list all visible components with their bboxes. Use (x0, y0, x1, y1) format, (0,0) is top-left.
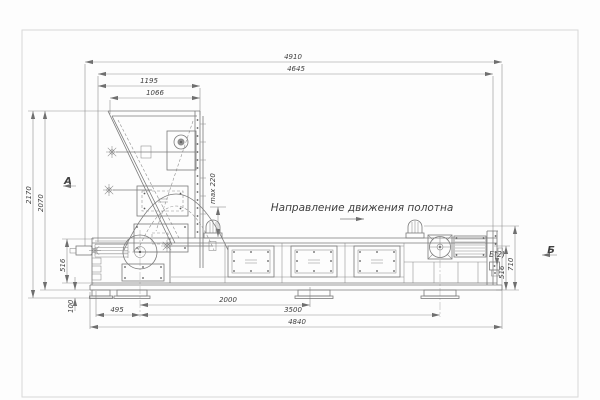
belt-direction: Направление движения полотна (271, 202, 454, 219)
dim-2000: 2000 (219, 296, 237, 304)
drive-unit (404, 231, 503, 285)
direction-label: Направление движения полотна (271, 202, 454, 214)
technical-drawing: 4910 4645 1195 1066 2170 2070 516 100 20… (0, 0, 600, 400)
view-a-label: А (63, 176, 72, 187)
dim-495: 495 (110, 306, 124, 314)
max-gap-label: max 220 (209, 173, 217, 204)
dim-4840: 4840 (288, 318, 306, 326)
dimension-lines (33, 62, 515, 327)
dim-3500: 3500 (284, 306, 302, 314)
drawing-sheet: 4910 4645 1195 1066 2170 2070 516 100 20… (0, 0, 600, 400)
handwheel-icon (89, 146, 173, 257)
access-panels (228, 246, 400, 277)
support-feet (90, 290, 460, 299)
dim-2170: 2170 (25, 186, 33, 204)
conveyor-body (70, 220, 502, 290)
dim-516-left: 516 (59, 258, 67, 272)
dim-710: 710 (507, 257, 515, 271)
dim-1195: 1195 (140, 77, 158, 85)
extension-lines (28, 64, 519, 329)
dim-100: 100 (67, 299, 75, 313)
dim-2070: 2070 (37, 194, 45, 212)
bearing-stand (204, 220, 424, 238)
dim-4645: 4645 (287, 65, 305, 73)
dim-4910: 4910 (284, 53, 302, 61)
view-b-label: Б (547, 245, 555, 256)
dim-1066: 1066 (146, 89, 164, 97)
